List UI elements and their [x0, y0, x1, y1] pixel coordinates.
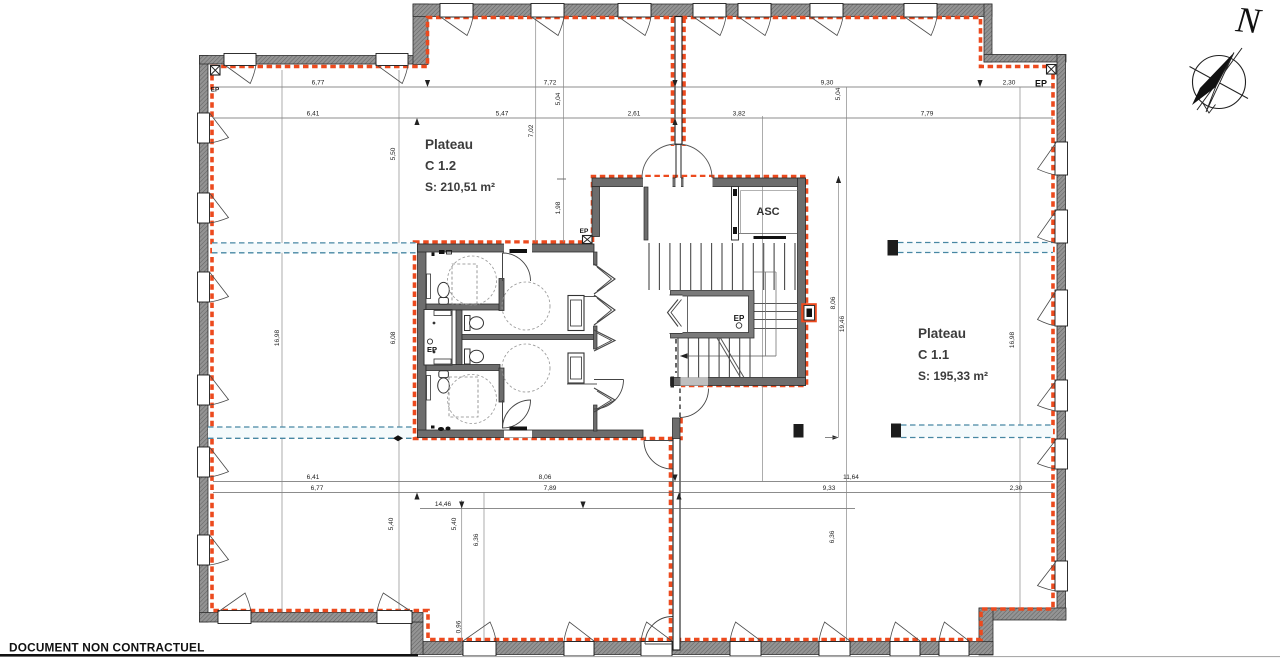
svg-text:DOCUMENT NON CONTRACTUEL: DOCUMENT NON CONTRACTUEL [9, 641, 205, 655]
svg-text:6,77: 6,77 [311, 485, 324, 492]
svg-text:3,82: 3,82 [733, 111, 746, 118]
svg-text:7,89: 7,89 [544, 485, 557, 492]
svg-text:5,40: 5,40 [451, 517, 458, 530]
svg-text:19,46: 19,46 [839, 315, 846, 332]
svg-text:5,40: 5,40 [388, 517, 395, 530]
svg-text:6,36: 6,36 [473, 533, 480, 546]
svg-text:Plateau: Plateau [918, 326, 966, 341]
svg-text:EP: EP [427, 345, 437, 354]
svg-text:0,96: 0,96 [456, 620, 463, 633]
svg-text:7,72: 7,72 [544, 80, 557, 87]
svg-text:6,77: 6,77 [312, 80, 325, 87]
svg-text:6,41: 6,41 [307, 111, 320, 118]
svg-text:5,04: 5,04 [835, 87, 842, 100]
svg-text:16,98: 16,98 [1009, 331, 1016, 348]
svg-text:1,98: 1,98 [555, 201, 562, 214]
svg-text:EP: EP [734, 314, 745, 323]
svg-text:8,06: 8,06 [830, 296, 837, 309]
svg-text:S: 195,33 m²: S: 195,33 m² [918, 369, 988, 383]
svg-text:7,79: 7,79 [921, 111, 934, 118]
svg-text:5,47: 5,47 [496, 111, 509, 118]
svg-text:5,50: 5,50 [390, 147, 397, 160]
svg-text:11,64: 11,64 [843, 474, 859, 481]
svg-text:16,98: 16,98 [274, 329, 281, 346]
svg-text:EP: EP [1035, 79, 1047, 89]
svg-text:EP: EP [580, 228, 589, 235]
svg-text:6,08: 6,08 [390, 331, 397, 344]
svg-text:S: 210,51 m²: S: 210,51 m² [425, 180, 495, 194]
svg-text:C 1.2: C 1.2 [425, 158, 456, 173]
svg-text:2,30: 2,30 [1010, 485, 1023, 492]
svg-text:6,36: 6,36 [829, 530, 836, 543]
svg-text:C 1.1: C 1.1 [918, 347, 949, 362]
svg-text:EP: EP [211, 87, 219, 94]
svg-text:5,04: 5,04 [555, 92, 562, 105]
svg-text:14,46: 14,46 [435, 501, 452, 508]
svg-text:9,30: 9,30 [821, 80, 834, 87]
svg-text:7,02: 7,02 [528, 124, 535, 137]
svg-text:9,33: 9,33 [823, 485, 836, 492]
svg-text:8,06: 8,06 [539, 474, 552, 481]
svg-text:Plateau: Plateau [425, 137, 473, 152]
svg-text:ASC: ASC [756, 206, 779, 218]
svg-text:6,41: 6,41 [307, 474, 320, 481]
svg-text:2,30: 2,30 [1003, 80, 1016, 87]
svg-text:2,61: 2,61 [628, 111, 641, 118]
